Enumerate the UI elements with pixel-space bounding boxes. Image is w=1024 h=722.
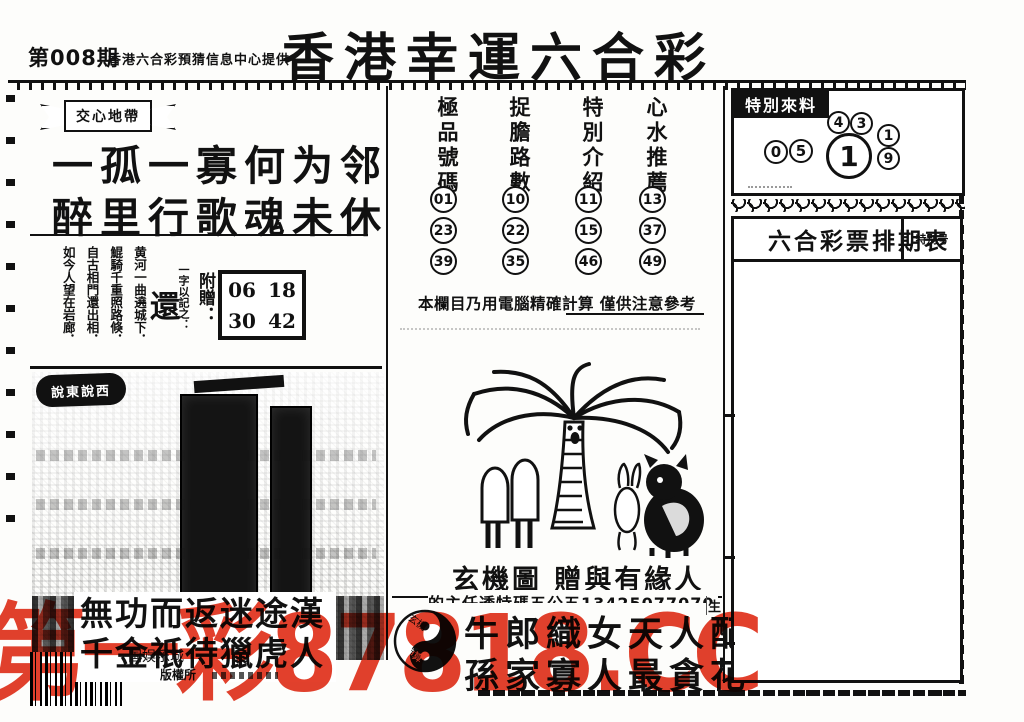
schedule-corner-label: 特别号	[916, 231, 949, 247]
computer-note: 本欄目乃用電腦精確計算 僅供注意參考	[418, 292, 718, 314]
dog	[644, 454, 704, 558]
special-label-box: 特別來料	[733, 90, 829, 118]
special-digit: 1	[877, 124, 900, 147]
schedule-tick	[725, 414, 735, 417]
rule-under-poem	[30, 234, 368, 236]
pick-number: 37	[639, 217, 666, 244]
bonus-number: 18	[268, 278, 296, 302]
pick-number: 39	[430, 248, 457, 275]
schedule-corner-cell: 特别号	[901, 219, 960, 259]
verse-col-4: 如今人望在岩廊．	[56, 246, 80, 350]
pick-number: 46	[575, 248, 602, 275]
pick-number: 15	[575, 217, 602, 244]
small-trees	[482, 460, 538, 548]
banner-wing-right	[150, 104, 176, 130]
rabbit	[615, 464, 640, 550]
special-digit: 0	[764, 140, 788, 164]
special-digit: 9	[877, 147, 900, 170]
bonus-numbers-box: 06 18 30 42	[218, 270, 306, 340]
verse-col-2: 鯤騎千重照路倏．	[104, 246, 128, 350]
verse-columns: 黄河一曲遶城下． 鯤騎千重照路倏． 自古相門還出相． 如今人望在岩廊．	[56, 246, 151, 350]
lottery-sheet: 第008期 香港六合彩預猜信息中心提供 香港幸運六合彩 交心地帶 一孤一寡何为邻…	[0, 0, 1024, 722]
note-underline	[566, 313, 704, 315]
left-page-border	[6, 95, 15, 525]
banner-ribbon: 交心地帶	[64, 100, 152, 132]
poem-line-1: 一孤一寡何为邻	[52, 132, 388, 192]
gossip-banner: 說東說西	[35, 372, 126, 407]
schedule-body-empty	[734, 262, 960, 722]
verse-col-3: 自古相門還出相．	[80, 246, 104, 350]
special-label: 特別來料	[745, 92, 817, 116]
special-digit-big: 1	[826, 133, 872, 179]
mystic-picture	[424, 360, 724, 560]
pick-number: 22	[502, 217, 529, 244]
banner-wing-left	[40, 104, 66, 130]
special-digit: 3	[850, 112, 873, 135]
pick-number: 49	[639, 248, 666, 275]
schedule-tick	[725, 556, 735, 559]
one-word-label: 一字以記之：	[175, 264, 191, 340]
gossip-banner-label: 說東說西	[51, 379, 112, 400]
bonus-number: 06	[228, 278, 256, 302]
provider-line: 香港六合彩預猜信息中心提供	[108, 49, 290, 68]
bonus-number: 30	[228, 309, 256, 333]
pick-number: 23	[430, 217, 457, 244]
special-digit: 5	[789, 139, 813, 163]
rule-above-photo	[30, 366, 382, 369]
pick-number: 35	[502, 248, 529, 275]
pick-number: 01	[430, 186, 457, 213]
special-digit: 4	[827, 111, 850, 134]
issue-number: 第008期	[28, 42, 119, 72]
bonus-label: 附贈：	[193, 272, 218, 336]
pick-number: 10	[502, 186, 529, 213]
schedule-box: 六合彩票排期表 特别号	[731, 216, 963, 683]
palm-trunk	[552, 422, 594, 528]
bonus-number: 42	[268, 309, 296, 333]
scalloped-divider	[731, 199, 965, 212]
faint-dotted-row	[400, 328, 700, 330]
verse-col-1: 黄河一曲遶城下．	[127, 246, 151, 350]
pick-number: 11	[575, 186, 602, 213]
watermark: 第一彩87818.CC	[0, 602, 760, 708]
schedule-header-row: 六合彩票排期表 特别号	[734, 219, 960, 262]
special-dotted	[748, 186, 792, 188]
photo-faint-text-rows	[36, 412, 376, 572]
pick-number: 13	[639, 186, 666, 213]
banner-label: 交心地帶	[76, 106, 140, 126]
